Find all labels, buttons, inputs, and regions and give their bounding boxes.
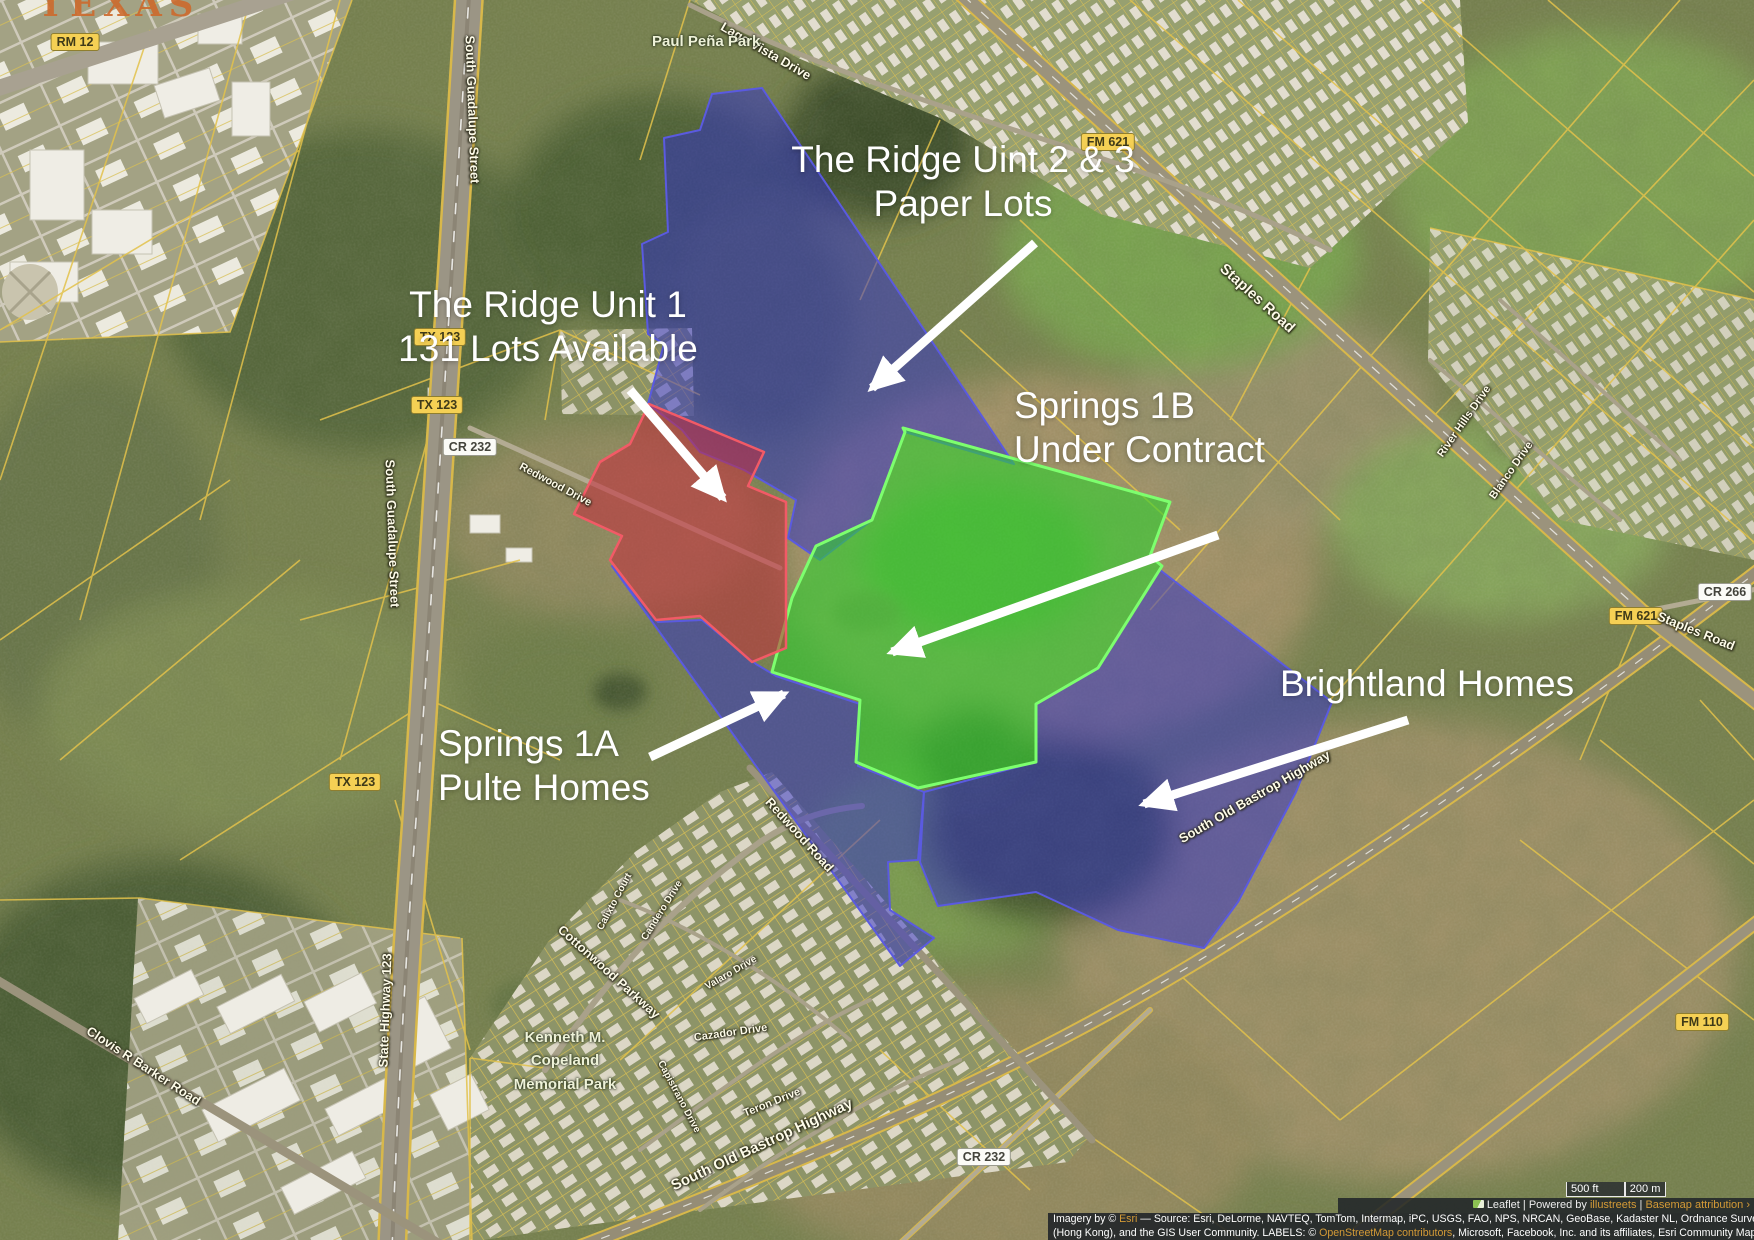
shield-cr266: CR 266 [1698,583,1752,601]
scale-feet: 500 ft [1566,1182,1625,1197]
annotation-springs1a-line2: Pulte Homes [438,766,650,810]
scale-bar: 500 ft 200 m [1566,1182,1666,1197]
annotation-springs1b-line2: Under Contract [1014,428,1265,472]
park-label-copeland-line1: Kenneth M. [514,1026,617,1049]
powered-by-label: Powered by [1529,1199,1590,1211]
attr1-text: Imagery by © [1053,1213,1119,1225]
park-label-copeland-line2: Copeland [514,1049,617,1072]
annotation-ridge1-line1: The Ridge Unit 1 [398,283,698,327]
scale-meters: 200 m [1625,1182,1666,1197]
annotation-ridge1-line2: 131 Lots Available [398,327,698,371]
illustreets-link[interactable]: illustreets [1590,1199,1636,1211]
annotation-brightland: Brightland Homes [1280,662,1574,706]
shield-cr232-a: CR 232 [443,438,497,456]
shield-tx123-c: TX 123 [329,773,381,791]
park-label-paul-pena: Paul Peña Park [652,30,760,53]
leaflet-flag-icon [1473,1200,1484,1208]
leaflet-link[interactable]: Leaflet [1487,1199,1520,1211]
annotation-springs1a: Springs 1A Pulte Homes [438,722,650,809]
annotation-springs1a-line1: Springs 1A [438,722,650,766]
attribution-box: Imagery by © Esri — Source: Esri, DeLorm… [1048,1213,1754,1240]
annotation-springs1b-line1: Springs 1B [1014,384,1265,428]
attr1-text2: — Source: Esri, DeLorme, NAVTEQ, TomTom,… [1137,1213,1754,1225]
attribution-line1: Imagery by © Esri — Source: Esri, DeLorm… [1053,1213,1749,1227]
annotation-ridge23-line1: The Ridge Uint 2 & 3 [791,138,1134,182]
annotation-springs1b: Springs 1B Under Contract [1014,384,1265,471]
map-viewport[interactable]: TEXAS RM 12 TX 123 TX 123 TX 123 FM 621 … [0,0,1754,1240]
annotation-ridge1: The Ridge Unit 1 131 Lots Available [398,283,698,370]
shield-tx123-b: TX 123 [411,396,463,414]
esri-link[interactable]: Esri [1119,1213,1137,1225]
annotation-ridge23: The Ridge Uint 2 & 3 Paper Lots [791,138,1134,225]
basemap-attribution-link[interactable]: Basemap attribution › [1645,1199,1750,1211]
annotation-ridge23-line2: Paper Lots [791,182,1134,226]
map-credit-line: Leaflet | Powered by illustreets | Basem… [1338,1198,1754,1213]
park-label-copeland: Kenneth M. Copeland Memorial Park [514,1026,617,1096]
credit-separator: | [1520,1199,1529,1211]
osm-link[interactable]: OpenStreetMap contributors [1319,1227,1452,1239]
annotation-brightland-line1: Brightland Homes [1280,662,1574,706]
shield-cr232-b: CR 232 [957,1148,1011,1166]
shield-rm12: RM 12 [51,33,100,51]
attribution-line2: (Hong Kong), and the GIS User Community.… [1053,1227,1749,1240]
shield-fm110: FM 110 [1675,1013,1729,1031]
park-label-copeland-line3: Memorial Park [514,1073,617,1096]
attr2-text2: , Microsoft, Facebook, Inc. and its affi… [1452,1227,1754,1239]
corner-watermark: TEXAS [38,0,200,25]
attr2-text: (Hong Kong), and the GIS User Community.… [1053,1227,1319,1239]
